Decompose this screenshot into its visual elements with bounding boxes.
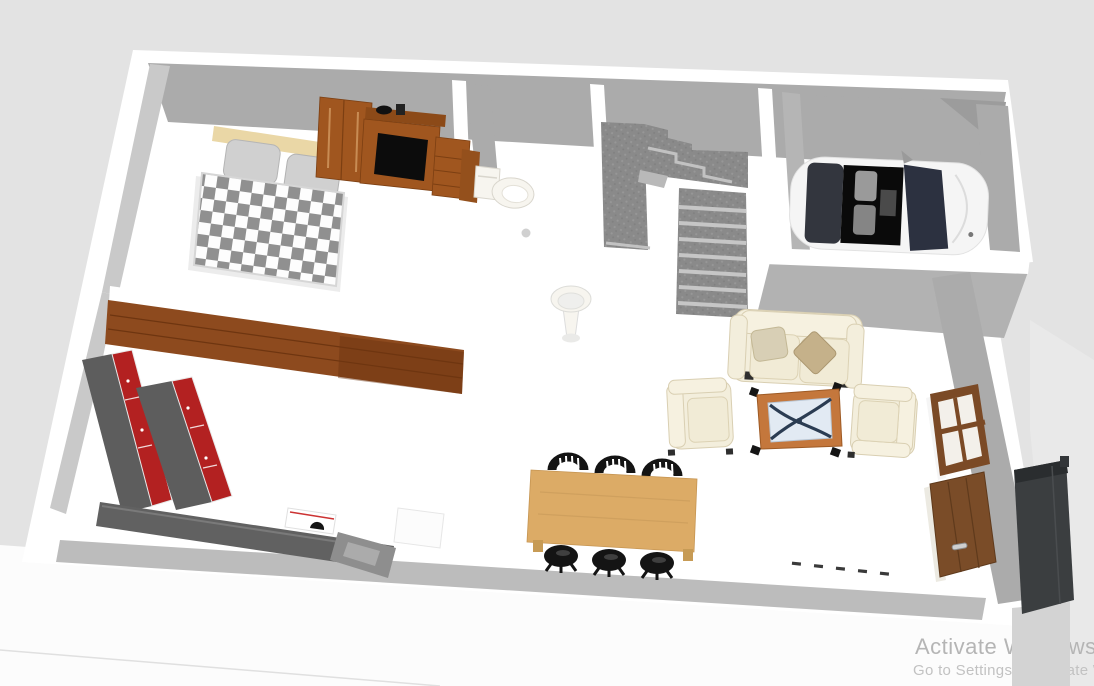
outdoor-dark-unit xyxy=(1014,456,1074,614)
bed-checkered-blanket xyxy=(194,173,344,286)
armchair-right xyxy=(847,384,918,462)
ground-gray-band xyxy=(1012,602,1070,686)
dining-chair xyxy=(592,549,626,577)
armchair-cushion xyxy=(687,397,729,443)
dining-chair xyxy=(640,552,674,580)
table-leg-knot xyxy=(796,418,802,424)
armchair-foot xyxy=(726,448,733,454)
cabinet-handle xyxy=(140,428,143,431)
dining-chair xyxy=(544,545,578,573)
chair-highlight xyxy=(652,557,666,563)
table-leg xyxy=(533,540,543,552)
car-rear-deck xyxy=(804,162,843,243)
cabinet-handle xyxy=(204,456,207,459)
armchair-foot xyxy=(668,449,675,455)
throw-pillow xyxy=(750,326,788,362)
entry-door xyxy=(930,472,996,577)
door-knob xyxy=(522,229,531,238)
sink-base xyxy=(562,334,580,343)
dark-unit-cap xyxy=(1060,456,1069,467)
chair-highlight xyxy=(556,550,570,556)
table-leg xyxy=(683,549,693,561)
chair-seat xyxy=(592,549,626,571)
dining-table xyxy=(527,470,697,552)
car-console xyxy=(880,190,897,217)
chair-seat xyxy=(640,552,674,574)
armchair-left xyxy=(664,377,734,457)
dark-unit-body xyxy=(1014,460,1074,614)
armchair-foot xyxy=(847,452,854,458)
appliance xyxy=(394,508,444,548)
sofa xyxy=(727,309,865,389)
armchair-cushion xyxy=(857,400,900,443)
shelf-object xyxy=(376,106,392,115)
stair-upper-flight xyxy=(601,122,648,250)
tv-screen xyxy=(374,133,428,181)
sink-bowl xyxy=(558,293,584,309)
cabinet-handle xyxy=(126,379,129,382)
armchair-arm xyxy=(668,378,727,395)
shelf-object xyxy=(396,104,405,115)
floorplan-3d-render: Activate Windows Go to Settings to activ… xyxy=(0,0,1094,686)
floorplan-3d-viewport: Activate Windows Go to Settings to activ… xyxy=(0,0,1094,686)
sofa-arm xyxy=(727,315,747,380)
chair-seat xyxy=(544,545,578,567)
car-seat xyxy=(854,170,877,201)
car-seat xyxy=(853,204,876,235)
chair-highlight xyxy=(604,554,618,560)
cabinet-handle xyxy=(186,406,189,409)
